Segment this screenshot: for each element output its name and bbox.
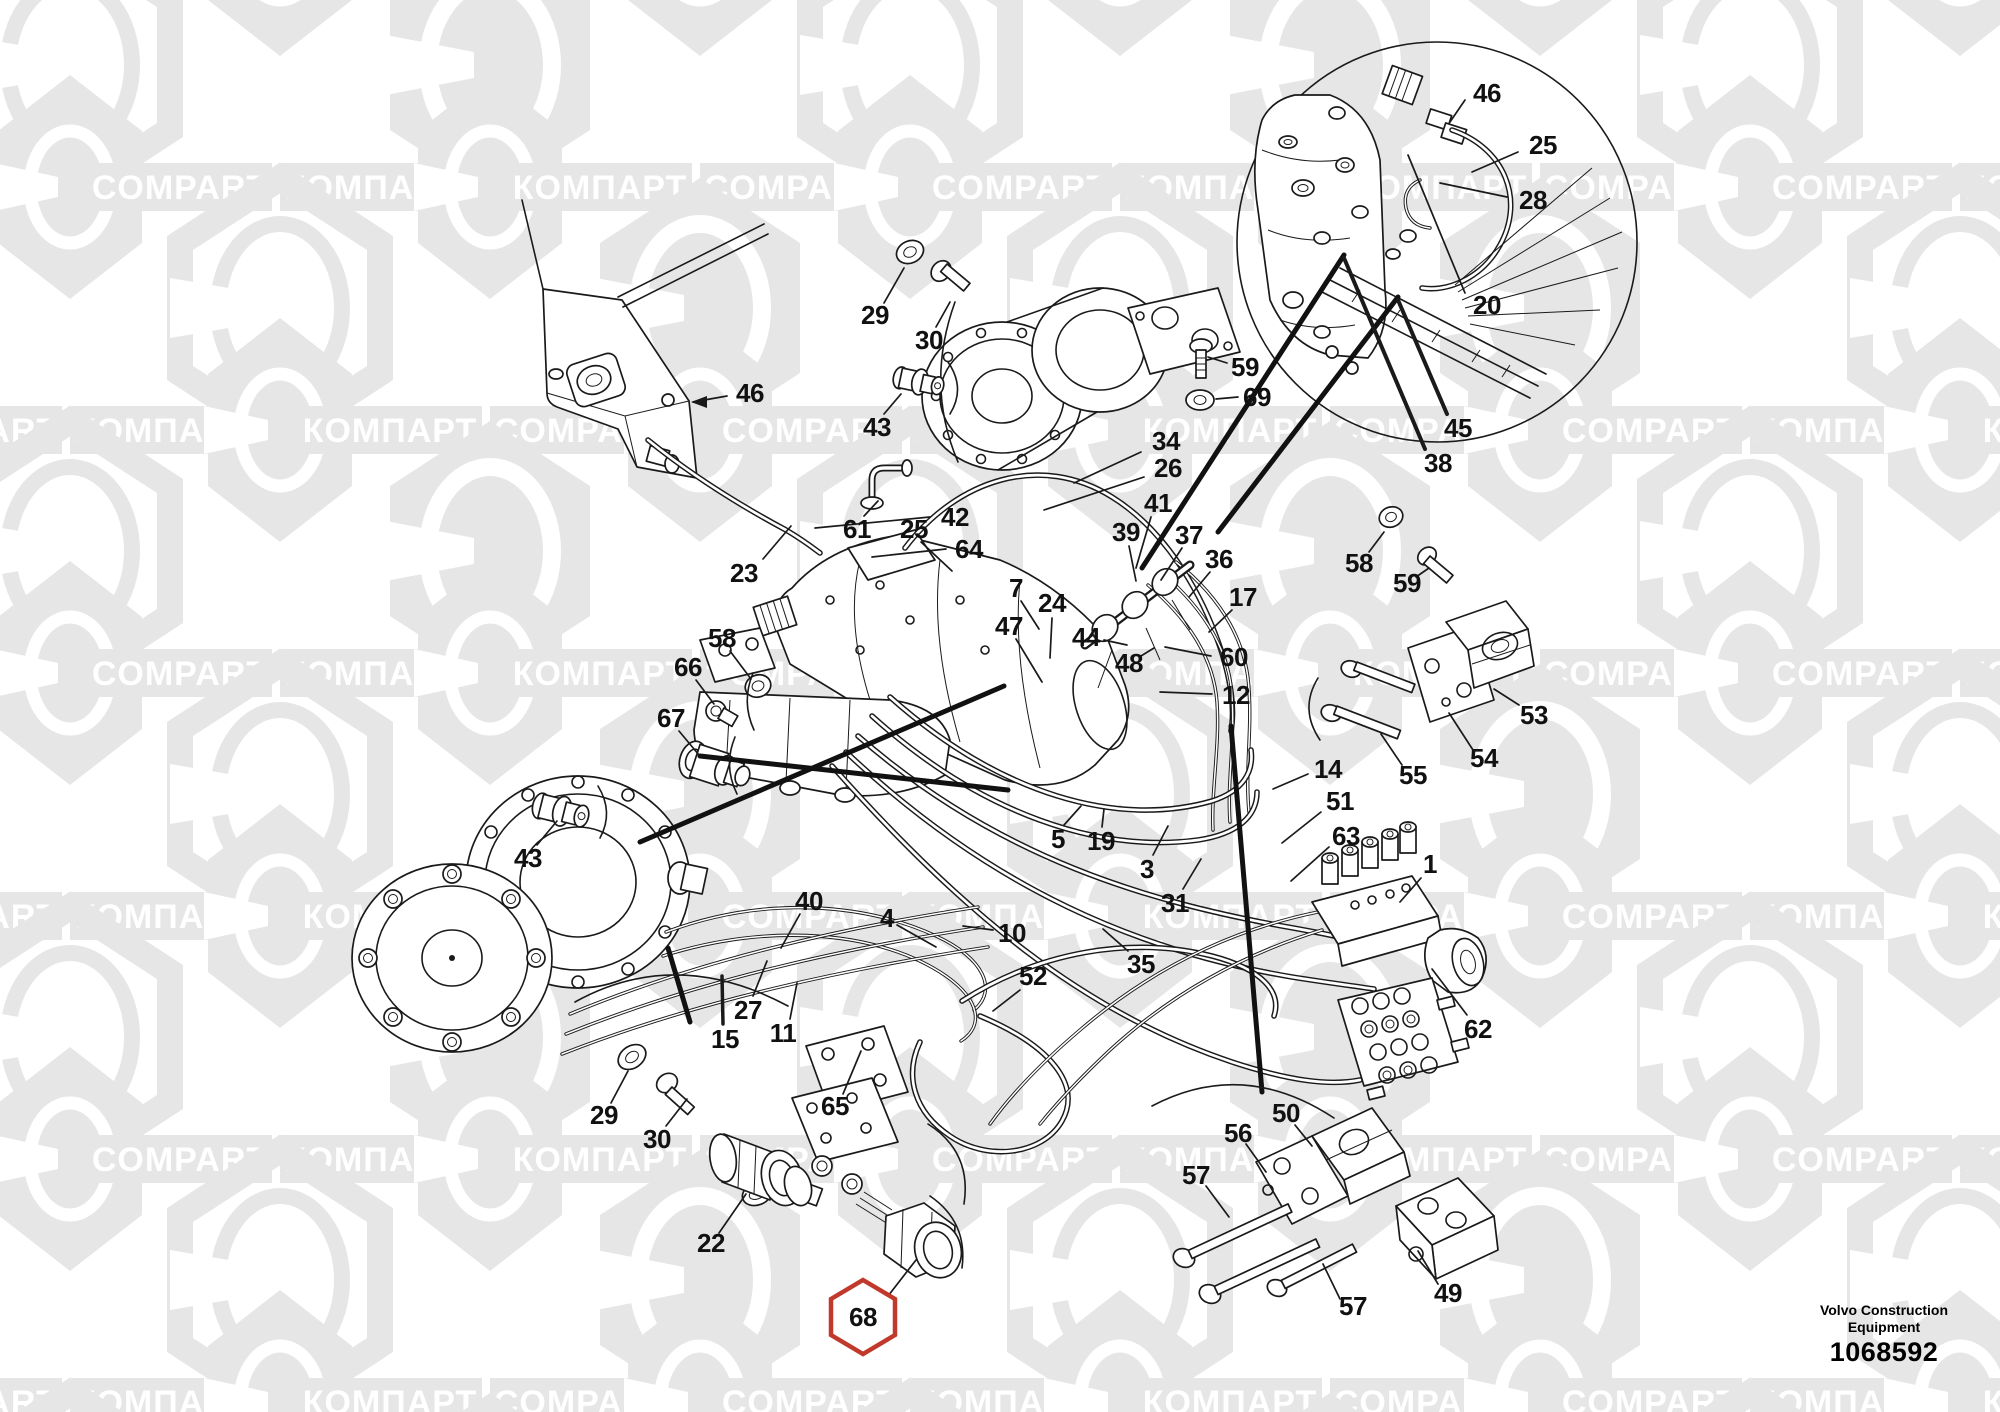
footer: Volvo Construction Equipment 1068592 — [1778, 1302, 1990, 1368]
callout-15[interactable]: 15 — [711, 1026, 739, 1052]
callout-63[interactable]: 63 — [1332, 823, 1360, 849]
callout-61[interactable]: 61 — [843, 516, 871, 542]
callout-25[interactable]: 25 — [1529, 132, 1557, 158]
callout-35[interactable]: 35 — [1127, 951, 1155, 977]
callout-19[interactable]: 19 — [1087, 828, 1115, 854]
callout-39[interactable]: 39 — [1112, 519, 1140, 545]
callout-44[interactable]: 44 — [1072, 624, 1100, 650]
callout-27[interactable]: 27 — [734, 997, 762, 1023]
callout-28[interactable]: 28 — [1519, 187, 1547, 213]
callout-26[interactable]: 26 — [1154, 455, 1182, 481]
parts-diagram-page: КОМПАРТCOMPARTCOMPARTКОМПАРТКОМПАРТCOMPA… — [0, 0, 2000, 1412]
callout-23[interactable]: 23 — [730, 560, 758, 586]
callout-29[interactable]: 29 — [590, 1102, 618, 1128]
callout-layer: 4625282045385969293043466125426423342641… — [0, 0, 2000, 1412]
callout-69[interactable]: 69 — [1243, 384, 1271, 410]
callout-4[interactable]: 4 — [880, 905, 894, 931]
callout-37[interactable]: 37 — [1175, 522, 1203, 548]
callout-51[interactable]: 51 — [1326, 788, 1354, 814]
callout-25[interactable]: 25 — [900, 516, 928, 542]
callout-31[interactable]: 31 — [1161, 890, 1189, 916]
callout-5[interactable]: 5 — [1051, 826, 1065, 852]
callout-34[interactable]: 34 — [1152, 428, 1180, 454]
callout-43[interactable]: 43 — [863, 414, 891, 440]
callout-38[interactable]: 38 — [1424, 450, 1452, 476]
callout-68[interactable]: 68 — [849, 1304, 877, 1330]
callout-53[interactable]: 53 — [1520, 702, 1548, 728]
callout-17[interactable]: 17 — [1229, 584, 1257, 610]
callout-49[interactable]: 49 — [1434, 1280, 1462, 1306]
callout-45[interactable]: 45 — [1444, 415, 1472, 441]
callout-65[interactable]: 65 — [821, 1093, 849, 1119]
callout-46[interactable]: 46 — [1473, 80, 1501, 106]
callout-3[interactable]: 3 — [1140, 856, 1154, 882]
callout-59[interactable]: 59 — [1393, 570, 1421, 596]
callout-30[interactable]: 30 — [915, 327, 943, 353]
callout-64[interactable]: 64 — [955, 536, 983, 562]
callout-40[interactable]: 40 — [795, 888, 823, 914]
callout-48[interactable]: 48 — [1115, 650, 1143, 676]
callout-14[interactable]: 14 — [1314, 756, 1342, 782]
callout-52[interactable]: 52 — [1019, 963, 1047, 989]
callout-41[interactable]: 41 — [1144, 490, 1172, 516]
callout-58[interactable]: 58 — [708, 625, 736, 651]
callout-42[interactable]: 42 — [941, 504, 969, 530]
callout-66[interactable]: 66 — [674, 654, 702, 680]
callout-60[interactable]: 60 — [1220, 644, 1248, 670]
callout-56[interactable]: 56 — [1224, 1120, 1252, 1146]
callout-57[interactable]: 57 — [1182, 1162, 1210, 1188]
callout-58[interactable]: 58 — [1345, 550, 1373, 576]
callout-22[interactable]: 22 — [697, 1230, 725, 1256]
callout-11[interactable]: 11 — [770, 1020, 797, 1046]
document-number: 1068592 — [1778, 1336, 1990, 1368]
callout-20[interactable]: 20 — [1473, 292, 1501, 318]
callout-12[interactable]: 12 — [1222, 682, 1250, 708]
callout-7[interactable]: 7 — [1009, 575, 1023, 601]
callout-57[interactable]: 57 — [1339, 1293, 1367, 1319]
callout-30[interactable]: 30 — [643, 1126, 671, 1152]
callout-59[interactable]: 59 — [1231, 354, 1259, 380]
callout-29[interactable]: 29 — [861, 302, 889, 328]
callout-1[interactable]: 1 — [1423, 851, 1437, 877]
callout-43[interactable]: 43 — [514, 845, 542, 871]
callout-50[interactable]: 50 — [1272, 1100, 1300, 1126]
brand-line1: Volvo Construction — [1778, 1302, 1990, 1319]
callout-47[interactable]: 47 — [995, 613, 1023, 639]
callout-54[interactable]: 54 — [1470, 745, 1498, 771]
callout-24[interactable]: 24 — [1038, 590, 1066, 616]
callout-67[interactable]: 67 — [657, 705, 685, 731]
callout-55[interactable]: 55 — [1399, 762, 1427, 788]
brand-line2: Equipment — [1778, 1319, 1990, 1336]
callout-36[interactable]: 36 — [1205, 546, 1233, 572]
callout-46[interactable]: 46 — [736, 380, 764, 406]
callout-10[interactable]: 10 — [998, 920, 1026, 946]
callout-62[interactable]: 62 — [1464, 1016, 1492, 1042]
